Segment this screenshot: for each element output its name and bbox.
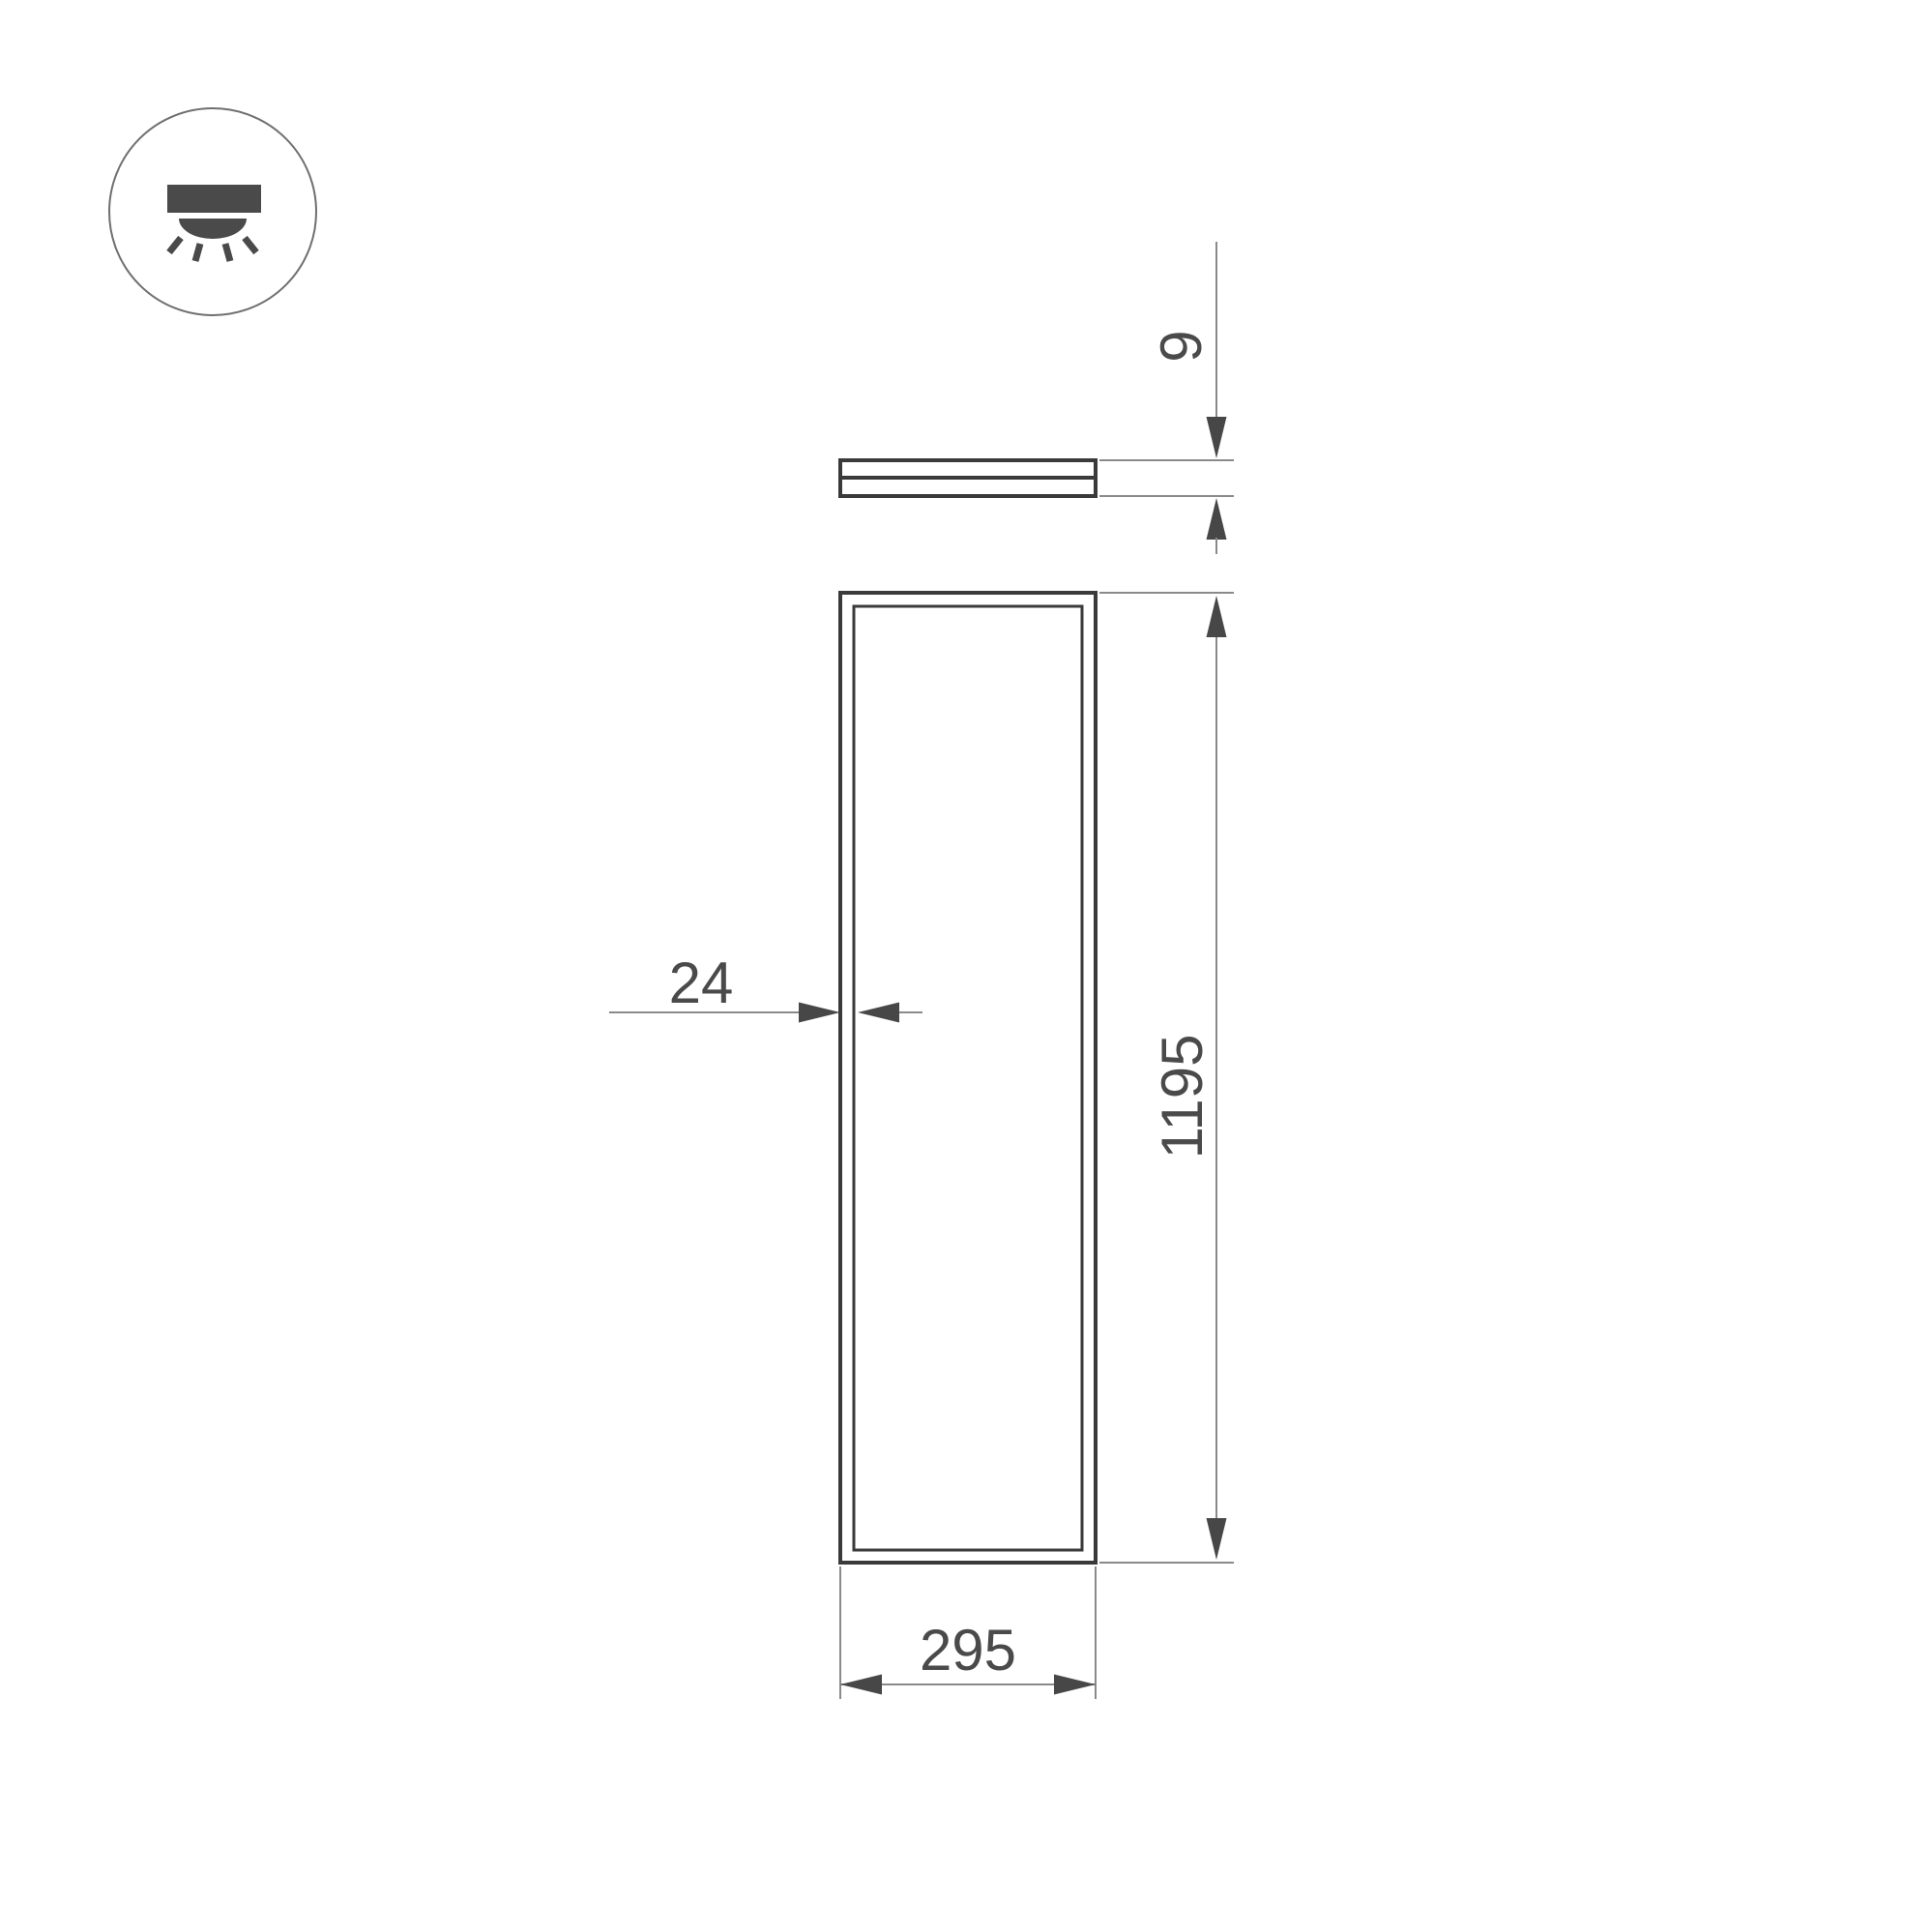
arrow-up-icon [1207, 498, 1227, 540]
dim-frame-width: 24 [609, 951, 922, 1023]
arrow-up-icon [1207, 596, 1227, 637]
dim-width: 295 [840, 1566, 1096, 1699]
dim-thickness: 9 [1099, 242, 1234, 554]
arrow-down-icon [1207, 1518, 1227, 1560]
drawing-canvas: 9 1195 24 [0, 0, 1932, 1932]
arrow-left-icon [840, 1675, 882, 1695]
dimension-drawing: 9 1195 24 [0, 0, 1932, 1932]
front-view-outline [840, 593, 1096, 1563]
recessed-downlight-icon [109, 108, 316, 315]
icon-light-ray [195, 244, 200, 261]
panel-side-view [840, 460, 1096, 496]
dim-length-value: 1195 [1150, 1034, 1215, 1158]
icon-light-ray [225, 244, 230, 261]
dim-length: 1195 [1099, 593, 1234, 1563]
front-view-inner-frame [854, 606, 1082, 1550]
dim-thickness-value: 9 [1149, 330, 1214, 362]
icon-fixture-body [167, 185, 261, 213]
arrow-right-icon [799, 1003, 840, 1023]
arrow-left-icon [858, 1003, 899, 1023]
arrow-down-icon [1207, 417, 1227, 458]
panel-front-view [840, 593, 1096, 1563]
dim-width-value: 295 [920, 1618, 1016, 1683]
arrow-right-icon [1054, 1675, 1096, 1695]
dim-frame-width-value: 24 [669, 951, 734, 1015]
